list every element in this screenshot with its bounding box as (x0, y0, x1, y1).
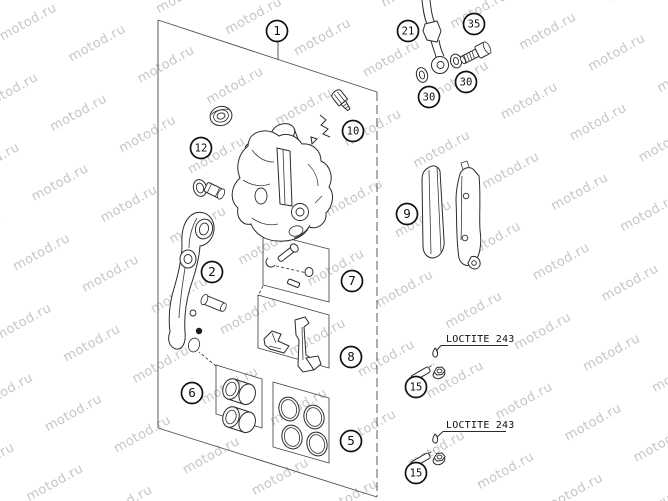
pistons-drawing (220, 377, 258, 435)
pin-kit-drawing (266, 242, 313, 288)
callout-number[interactable]: 30 (423, 92, 436, 104)
callout-15[interactable]: 15 (406, 463, 427, 484)
callout-30[interactable]: 30 (419, 87, 440, 108)
callout-7[interactable]: 7 (342, 271, 363, 292)
callout-2[interactable]: 2 (202, 262, 223, 283)
banjo-bolt-drawing (458, 41, 492, 67)
callout-number[interactable]: 15 (410, 382, 423, 394)
callout-number[interactable]: 15 (410, 468, 423, 480)
callout-number[interactable]: 5 (347, 433, 355, 448)
notes-layer: LOCTITE 243LOCTITE 243 (436, 334, 514, 437)
loctite-note: LOCTITE 243 (437, 420, 514, 437)
caliper-body-drawing (232, 120, 332, 241)
callout-15[interactable]: 15 (406, 377, 427, 398)
parts-diagram-svg: LOCTITE 243LOCTITE 243 12135303010129278… (0, 0, 668, 501)
callout-number[interactable]: 21 (402, 26, 415, 38)
callout-number[interactable]: 2 (208, 264, 216, 279)
callout-number[interactable]: 8 (347, 349, 355, 364)
parts-diagram-page: motod.rumotod.rumotod.rumotod.rumotod.ru… (0, 0, 668, 501)
callout-5[interactable]: 5 (341, 431, 362, 452)
callout-8[interactable]: 8 (341, 347, 362, 368)
callout-number[interactable]: 6 (188, 385, 196, 400)
loctite-label: LOCTITE 243 (446, 334, 514, 345)
callout-10[interactable]: 10 (343, 121, 364, 142)
callout-12[interactable]: 12 (191, 138, 212, 159)
callout-30[interactable]: 30 (456, 72, 477, 93)
brake-pads-drawing (422, 161, 481, 269)
callout-number[interactable]: 35 (468, 19, 481, 31)
callout-number[interactable]: 9 (403, 206, 411, 221)
loctite-label: LOCTITE 243 (446, 420, 514, 431)
callout-6[interactable]: 6 (182, 383, 203, 404)
callout-21[interactable]: 21 (398, 21, 419, 42)
callout-1[interactable]: 1 (267, 21, 288, 42)
leader-line (437, 432, 443, 438)
loctite-note: LOCTITE 243 (436, 334, 514, 351)
callout-number[interactable]: 10 (347, 126, 360, 138)
callout-number[interactable]: 12 (195, 143, 208, 155)
brake-hose-drawing (422, 0, 449, 74)
callout-9[interactable]: 9 (397, 204, 418, 225)
callout-number[interactable]: 1 (273, 23, 281, 38)
spring-kit-drawing (264, 317, 321, 372)
callout-35[interactable]: 35 (464, 14, 485, 35)
callout-number[interactable]: 30 (460, 77, 473, 89)
callout-number[interactable]: 7 (348, 273, 356, 288)
caliper-bracket-drawing (169, 212, 228, 353)
seals-drawing (276, 395, 330, 458)
leader-line (436, 346, 441, 352)
